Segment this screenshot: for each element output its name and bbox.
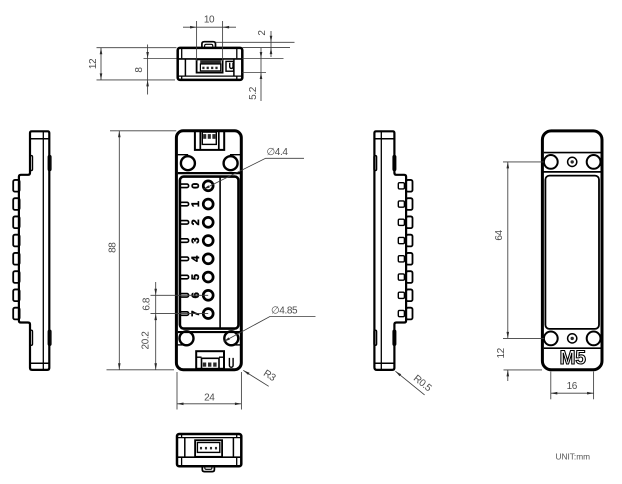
svg-text:6.8: 6.8 bbox=[141, 297, 152, 311]
svg-text:M5: M5 bbox=[560, 348, 587, 369]
svg-text:12: 12 bbox=[88, 58, 99, 69]
svg-text:∅4.85: ∅4.85 bbox=[271, 306, 298, 317]
svg-text:10: 10 bbox=[204, 14, 215, 25]
svg-text:16: 16 bbox=[567, 381, 578, 392]
svg-text:0: 0 bbox=[190, 183, 202, 189]
svg-text:64: 64 bbox=[494, 230, 505, 241]
svg-text:1: 1 bbox=[190, 201, 202, 207]
svg-text:3: 3 bbox=[190, 237, 202, 243]
svg-text:∅4.4: ∅4.4 bbox=[267, 147, 289, 158]
svg-text:8: 8 bbox=[134, 67, 145, 73]
svg-text:5.2: 5.2 bbox=[248, 86, 259, 100]
svg-text:12: 12 bbox=[496, 347, 507, 358]
svg-text:2: 2 bbox=[257, 30, 268, 36]
svg-text:5: 5 bbox=[190, 274, 202, 280]
svg-text:20.2: 20.2 bbox=[140, 331, 151, 350]
svg-text:UNIT:mm: UNIT:mm bbox=[556, 452, 591, 462]
svg-text:2: 2 bbox=[190, 219, 202, 225]
svg-text:88: 88 bbox=[108, 242, 119, 253]
svg-text:24: 24 bbox=[204, 393, 215, 404]
svg-text:4: 4 bbox=[190, 255, 202, 262]
